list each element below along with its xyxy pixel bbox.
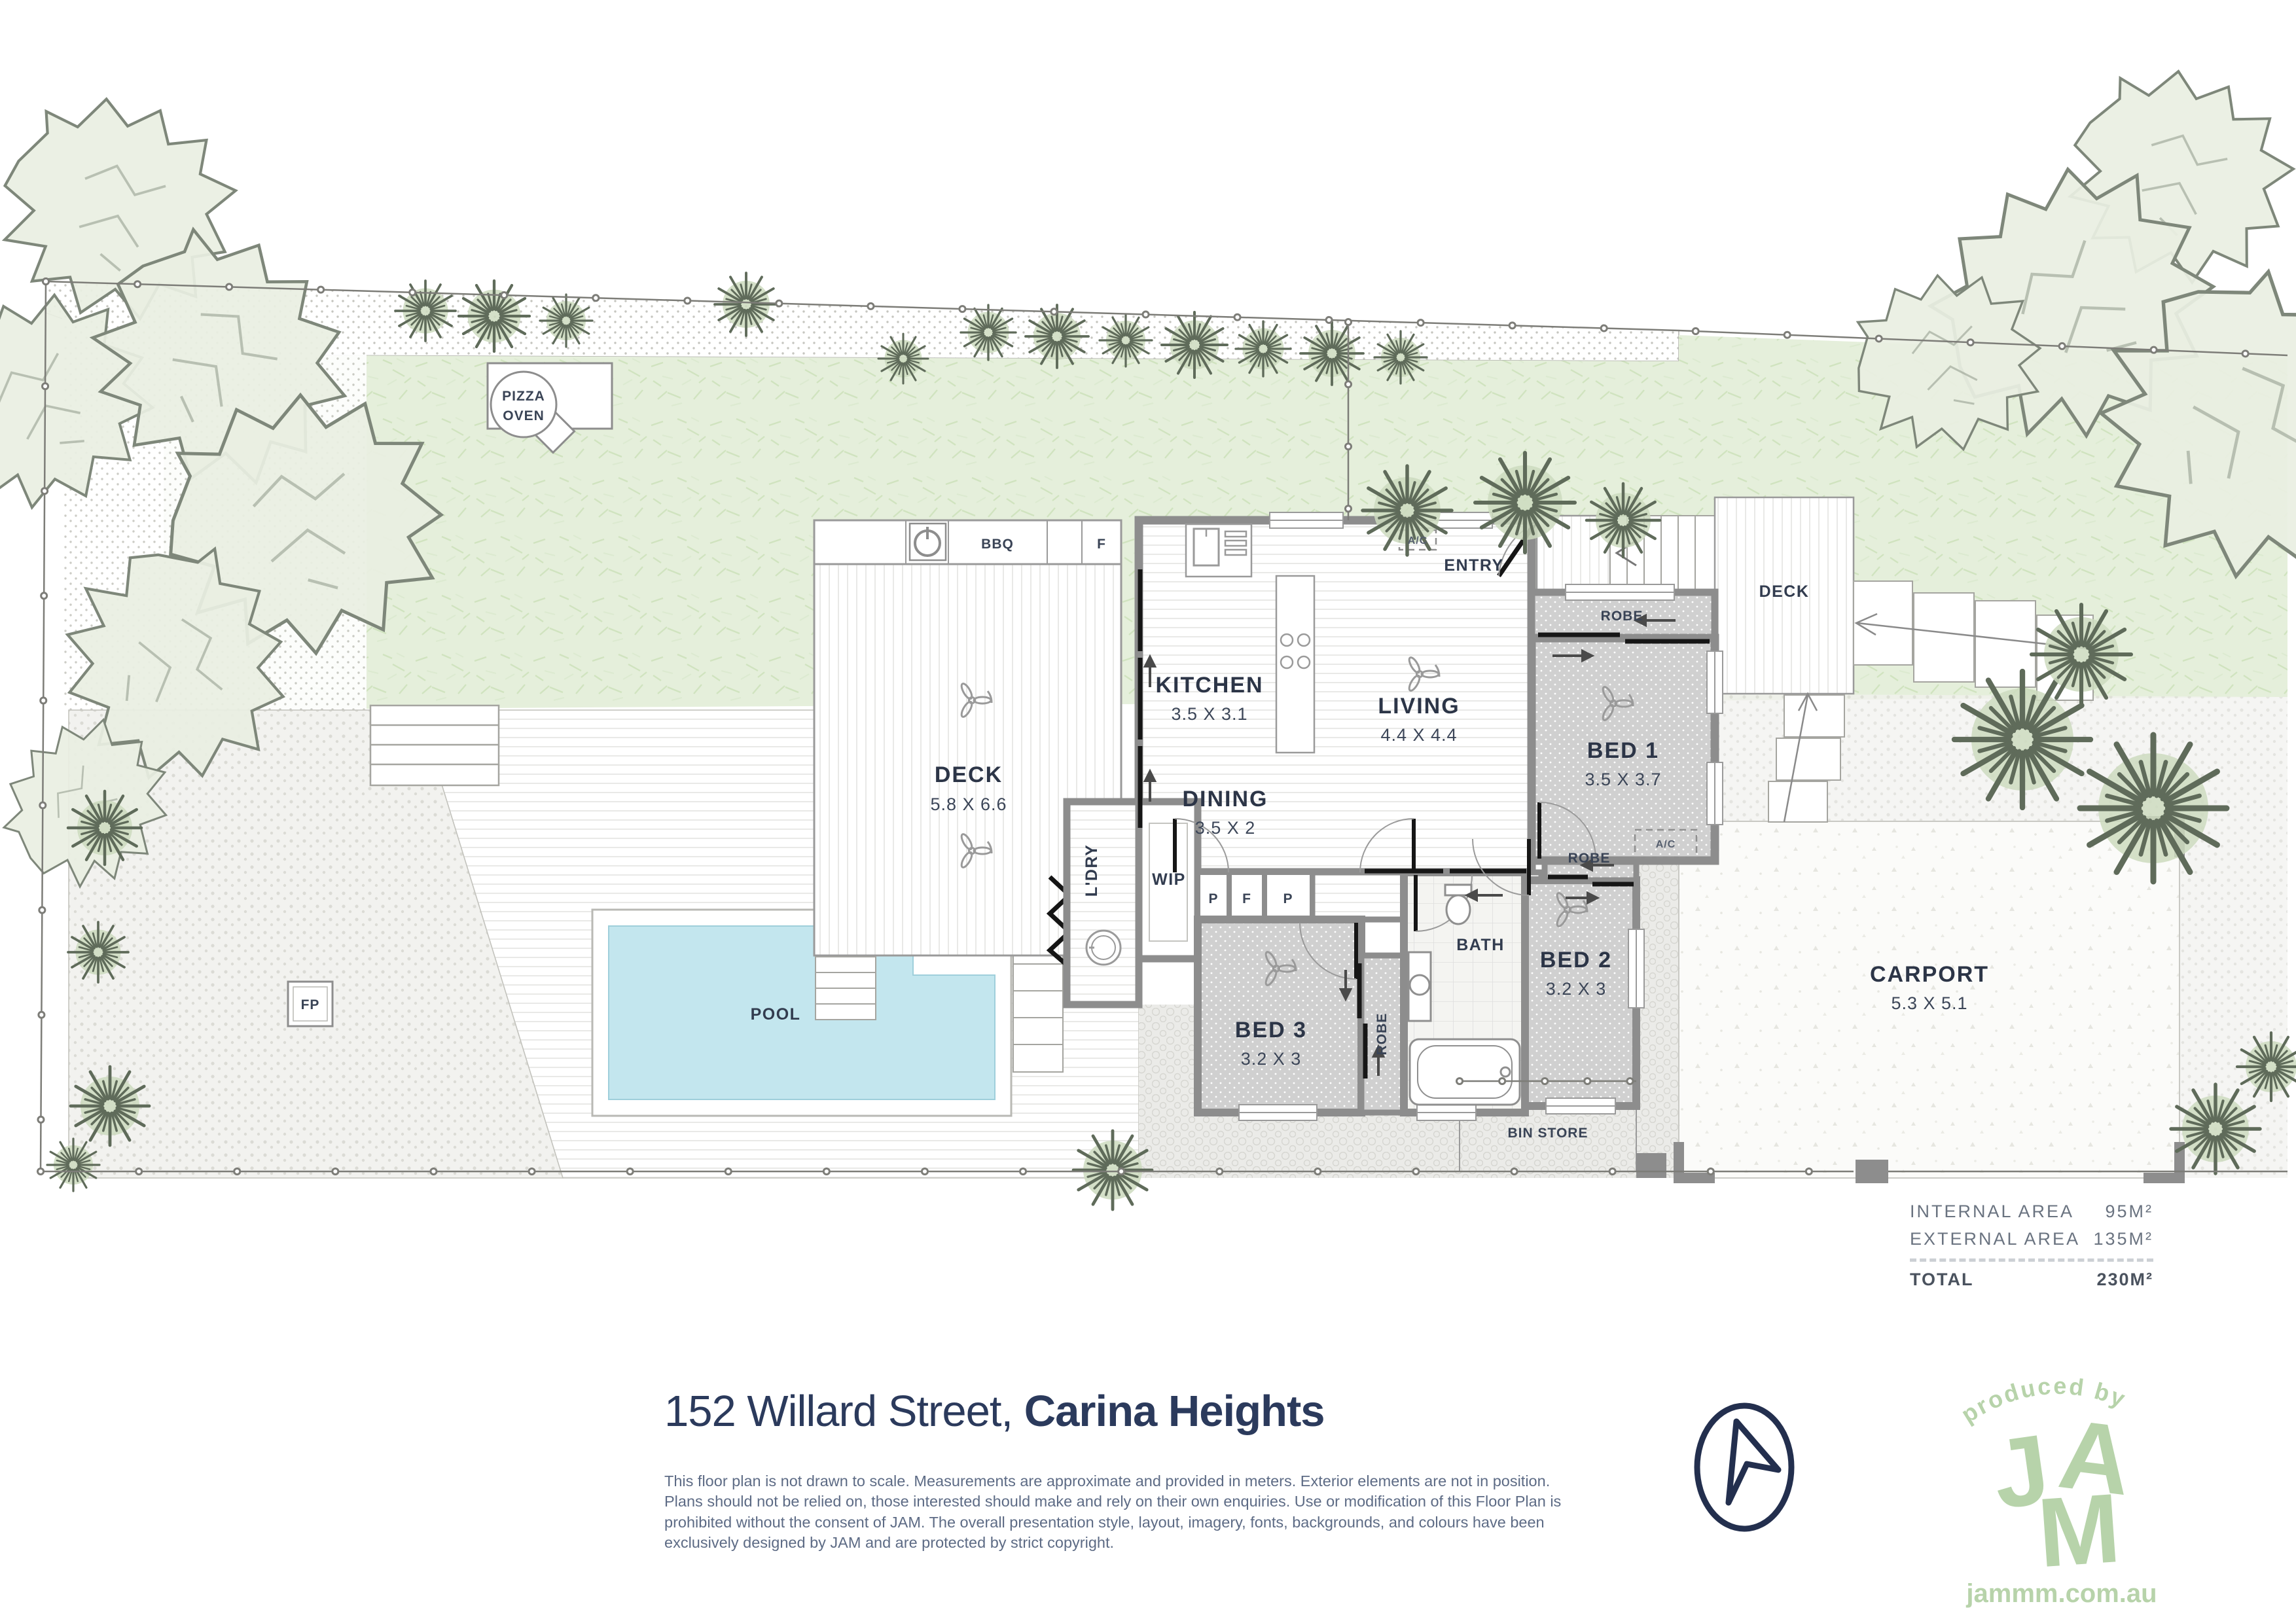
pantry1-label: P — [1208, 891, 1218, 906]
area-table: INTERNAL AREA 95M² EXTERNAL AREA 135M² T… — [1910, 1202, 2153, 1297]
bin-store-label: BIN STORE — [1508, 1126, 1588, 1141]
carport-dims: 5.3 X 5.1 — [1891, 993, 1967, 1013]
deck-dims: 5.8 X 6.6 — [930, 794, 1007, 814]
title-street: 152 Willard Street, — [664, 1387, 1024, 1436]
garden-stairs — [370, 705, 499, 785]
kitchen-label: KITCHEN — [1155, 673, 1263, 698]
logo-letter-m: M — [2034, 1472, 2123, 1588]
pizza-oven-label-1: PIZZA — [502, 389, 545, 404]
total-area-row: TOTAL 230M² — [1910, 1270, 2153, 1290]
living-label: LIVING — [1378, 694, 1460, 719]
entry-label: ENTRY — [1444, 556, 1503, 575]
internal-area-value: 95M² — [2105, 1202, 2153, 1222]
dining-label: DINING — [1183, 787, 1268, 811]
internal-area-label: INTERNAL AREA — [1910, 1202, 2074, 1222]
living-dims: 4.4 X 4.4 — [1380, 725, 1457, 745]
robe3-label: ROBE — [1374, 1013, 1390, 1056]
bbq-label: BBQ — [981, 537, 1014, 552]
wip-label: WIP — [1152, 870, 1186, 889]
title-suburb: Carina Heights — [1024, 1387, 1325, 1436]
total-area-label: TOTAL — [1910, 1270, 1974, 1290]
disclaimer-text: This floor plan is not drawn to scale. M… — [664, 1471, 1581, 1553]
jam-logo: produced by J A M jammm.com.au — [1924, 1348, 2199, 1613]
north-arrow-pointer — [1729, 1421, 1778, 1503]
logo-url: jammm.com.au — [1965, 1579, 2157, 1608]
internal-area-row: INTERNAL AREA 95M² — [1910, 1202, 2153, 1222]
robe1-label: ROBE — [1601, 609, 1643, 624]
deck-fridge-label: F — [1097, 537, 1106, 552]
pizza-oven — [491, 372, 556, 437]
deck-label: DECK — [935, 762, 1003, 787]
page-title: 152 Willard Street, Carina Heights — [664, 1386, 1646, 1436]
kitchen-dims: 3.5 X 3.1 — [1171, 704, 1247, 724]
ldry-label: L'DRY — [1083, 844, 1101, 897]
right-deck-label: DECK — [1759, 582, 1810, 601]
north-arrow — [1679, 1394, 1810, 1548]
carport-label: CARPORT — [1870, 962, 1989, 987]
pizza-oven-label-2: OVEN — [503, 408, 545, 423]
bed3-label: BED 3 — [1235, 1018, 1307, 1043]
external-area-row: EXTERNAL AREA 135M² — [1910, 1229, 2153, 1249]
pantry2-label: P — [1283, 891, 1293, 906]
washer-icon — [1086, 931, 1121, 965]
bed2-label: BED 2 — [1540, 948, 1612, 972]
bed2-dims: 3.2 X 3 — [1546, 979, 1607, 999]
total-area-value: 230M² — [2096, 1270, 2153, 1290]
area-table-divider — [1910, 1258, 2153, 1262]
bath-label: BATH — [1456, 936, 1505, 954]
fp-label: FP — [301, 997, 320, 1012]
ac2-label: A/C — [1656, 839, 1676, 850]
fridge-label: F — [1242, 891, 1251, 906]
outdoor-sink-icon — [910, 524, 946, 560]
bed1-label: BED 1 — [1587, 738, 1659, 763]
pool-label: POOL — [751, 1005, 801, 1024]
external-area-value: 135M² — [2093, 1229, 2153, 1249]
ac1-label: A/C — [1408, 535, 1428, 546]
bed3-dims: 3.2 X 3 — [1241, 1049, 1302, 1069]
dining-dims: 3.5 X 2 — [1195, 818, 1256, 838]
robe2-label: ROBE — [1568, 851, 1611, 866]
external-area-label: EXTERNAL AREA — [1910, 1229, 2080, 1249]
bed1-dims: 3.5 X 3.7 — [1585, 770, 1661, 789]
floorplan-page: { "plan": { "rooms": { "deck_main": {"na… — [0, 0, 2296, 1623]
